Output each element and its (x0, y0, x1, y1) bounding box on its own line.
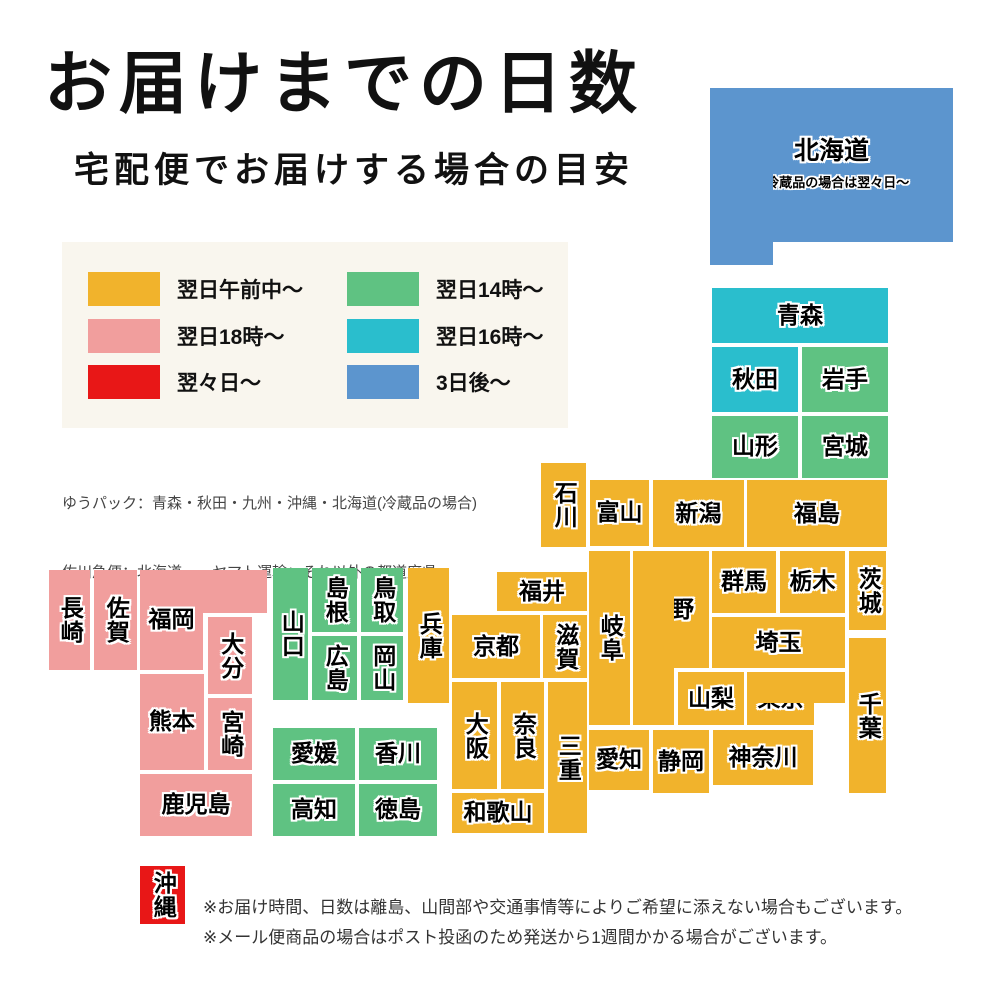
map-tile-note-hokkaido: ※冷蔵品の場合は翌々日〜 (754, 172, 910, 191)
map-tile-miyazaki: 宮崎 (208, 698, 252, 770)
map-tile-label-kagawa: 香川 (375, 742, 421, 765)
map-tile-hyogo: 兵庫 (408, 568, 449, 703)
map-tile-fukuoka-part2: 福岡 (140, 570, 203, 670)
map-tile-ishikawa: 石川 (541, 463, 586, 547)
map-tile-label-fukushima: 福島 (794, 502, 840, 525)
map-tile-fukushima: 福島 (747, 480, 887, 547)
map-tile-label-hiroshima: 広島 (323, 644, 346, 692)
map-tile-label-tokushima: 徳島 (375, 798, 421, 821)
map-tile-tokyo-part2 (747, 672, 845, 703)
map-tile-label-oita: 大分 (218, 632, 241, 680)
map-tile-yamagata: 山形 (712, 416, 798, 478)
map-tile-label-hokkaido: 北海道 (794, 139, 869, 165)
map-tile-ibaraki: 茨城 (849, 551, 886, 630)
map-tile-label-tottori: 鳥取 (370, 576, 393, 624)
map-tile-shizuoka: 静岡 (653, 730, 709, 793)
footnote-1: ※お届け時間、日数は離島、山間部や交通事情等によりご希望に添えない場合もございま… (203, 893, 912, 923)
map-tile-label-toyama: 富山 (597, 501, 643, 524)
map-tile-osaka: 大阪 (452, 682, 497, 789)
map-tile-label-kanagawa: 神奈川 (729, 746, 798, 769)
map-tile-label-aomori: 青森 (777, 304, 823, 327)
map-tile-kyoto: 京都 (452, 615, 540, 678)
map-tile-nagasaki: 長崎 (49, 570, 90, 670)
map-tile-label-iwate: 岩手 (822, 368, 868, 391)
map-tile-label-niigata: 新潟 (676, 502, 722, 525)
map-tile-label-gunma: 群馬 (721, 570, 767, 593)
map-tile-mie: 三重 (548, 682, 587, 833)
map-tile-label-gifu: 岐阜 (598, 614, 621, 662)
map-tile-gunma: 群馬 (712, 551, 776, 613)
map-tile-label-ehime: 愛媛 (291, 742, 337, 765)
map-tile-kanagawa: 神奈川 (713, 730, 813, 785)
map-tile-kagawa: 香川 (359, 728, 437, 780)
map-tile-kagoshima: 鹿児島 (140, 774, 252, 836)
map-tile-label-wakayama: 和歌山 (464, 801, 533, 824)
map-tile-saga: 佐賀 (94, 570, 137, 670)
footnote-2: ※メール便商品の場合はポスト投函のため発送から1週間かかる場合がございます。 (203, 923, 912, 953)
map-tile-okinawa: 沖縄 (140, 866, 185, 924)
map-tile-label-yamaguchi: 山口 (279, 610, 302, 658)
map-tile-tottori: 鳥取 (361, 568, 403, 632)
map-tile-label-kochi: 高知 (291, 798, 337, 821)
map-tile-label-saitama: 埼玉 (756, 631, 802, 654)
map-tile-wakayama: 和歌山 (452, 793, 544, 833)
map-tile-label-yamanashi: 山梨 (688, 687, 734, 710)
map-tile-label-shimane: 島根 (323, 576, 346, 624)
map-tile-label-shizuoka: 静岡 (658, 750, 704, 773)
map-tile-label-fukuoka: 福岡 (149, 608, 195, 631)
map-tile-label-miyagi: 宮城 (822, 435, 868, 458)
map-tile-label-miyazaki: 宮崎 (218, 710, 241, 758)
map-tile-label-kumamoto: 熊本 (149, 710, 195, 733)
map-tile-yamanashi: 山梨 (678, 672, 744, 725)
map-tile-label-fukui: 福井 (519, 580, 565, 603)
map-tile-tochigi: 栃木 (780, 551, 845, 613)
map-tile-label-ibaraki: 茨城 (856, 567, 879, 615)
map-tile-akita: 秋田 (712, 347, 798, 412)
map-tile-yamaguchi: 山口 (273, 568, 308, 700)
map-tile-label-ishikawa: 石川 (552, 481, 575, 529)
map-tile-label-chiba: 千葉 (856, 692, 879, 740)
map-tile-label-shiga: 滋賀 (553, 623, 576, 671)
map-tile-miyagi: 宮城 (802, 416, 888, 478)
map-tile-niigata: 新潟 (653, 480, 744, 547)
delivery-days-infographic: お届けまでの日数 宅配便でお届けする場合の目安 翌日午前中〜翌日14時〜翌日18… (0, 0, 1000, 1000)
map-tile-toyama: 富山 (590, 480, 649, 546)
map-tile-kochi: 高知 (273, 784, 355, 836)
map-tile-aomori: 青森 (712, 288, 888, 343)
map-tile-oita: 大分 (208, 617, 252, 694)
map-tile-nagano-part2 (633, 551, 674, 725)
map-tile-ehime: 愛媛 (273, 728, 355, 780)
map-tile-label-nagasaki: 長崎 (58, 596, 81, 644)
map-tile-label-aichi: 愛知 (596, 748, 642, 771)
map-tile-tokushima: 徳島 (359, 784, 437, 836)
map-tile-aichi: 愛知 (589, 730, 649, 790)
map-tile-label-akita: 秋田 (732, 368, 778, 391)
map-tile-chiba: 千葉 (849, 638, 886, 793)
map-tile-shimane: 島根 (312, 568, 357, 632)
map-tile-gifu: 岐阜 (589, 551, 630, 725)
japan-tile-map: 北海道※冷蔵品の場合は翌々日〜青森秋田岩手山形宮城新潟福島富山石川福井群馬栃木茨… (0, 0, 1000, 1000)
map-tile-kumamoto: 熊本 (140, 674, 204, 770)
map-tile-nara: 奈良 (501, 682, 544, 789)
map-tile-label-kagoshima: 鹿児島 (162, 793, 231, 816)
map-tile-label-nara: 奈良 (511, 712, 534, 760)
map-tile-label-okinawa: 沖縄 (151, 871, 174, 919)
map-tile-label-osaka: 大阪 (463, 712, 486, 760)
map-tile-label-tochigi: 栃木 (790, 570, 836, 593)
footnotes: ※お届け時間、日数は離島、山間部や交通事情等によりご希望に添えない場合もございま… (203, 893, 912, 953)
map-tile-okayama: 岡山 (361, 636, 403, 700)
map-tile-fukui: 福井 (497, 572, 587, 611)
map-tile-iwate: 岩手 (802, 347, 888, 412)
map-tile-label-kyoto: 京都 (473, 635, 519, 658)
map-tile-label-okayama: 岡山 (370, 644, 393, 692)
map-tile-label-saga: 佐賀 (104, 596, 127, 644)
map-tile-label-mie: 三重 (556, 734, 579, 782)
map-tile-label-hyogo: 兵庫 (417, 612, 440, 660)
map-tile-hokkaido-part2 (710, 88, 773, 265)
map-tile-saitama: 埼玉 (712, 617, 845, 668)
map-tile-hiroshima: 広島 (312, 636, 357, 700)
map-tile-label-yamagata: 山形 (732, 435, 778, 458)
map-tile-shiga: 滋賀 (543, 615, 587, 678)
